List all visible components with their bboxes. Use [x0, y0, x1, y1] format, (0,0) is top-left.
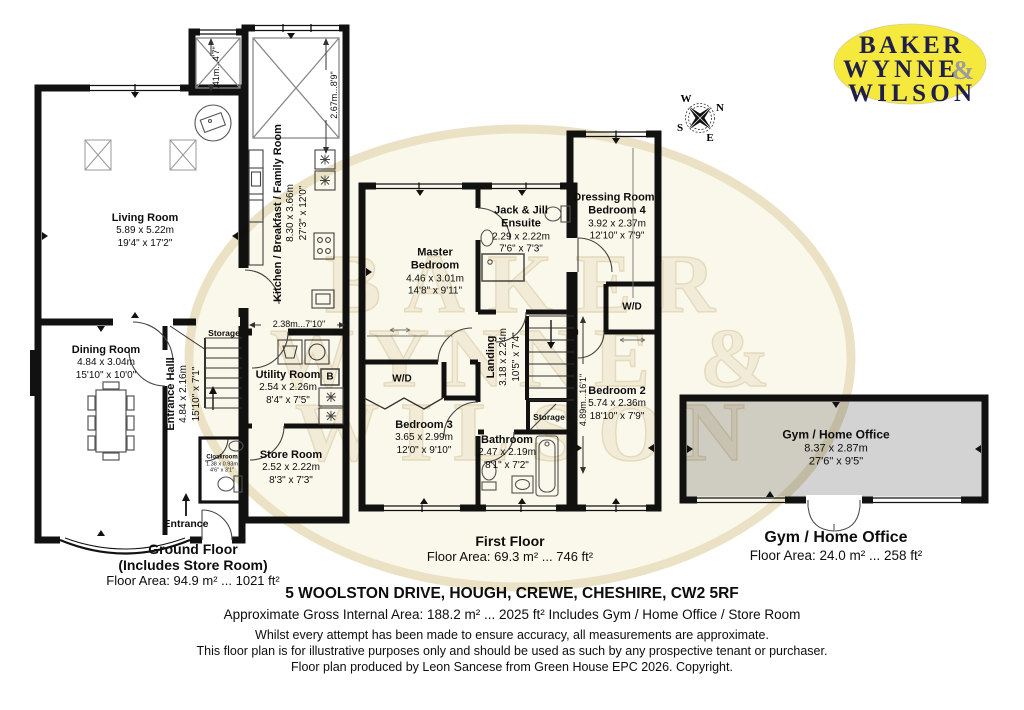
floorplan-page: W N S E BAKER WYNNE & WILSON BAKER WYNNE…	[0, 0, 1024, 710]
logo-line1: BAKER	[859, 32, 962, 59]
logo-line2: WYNNE	[843, 56, 955, 83]
agency-logo: BAKER WYNNE & WILSON	[0, 0, 1024, 710]
